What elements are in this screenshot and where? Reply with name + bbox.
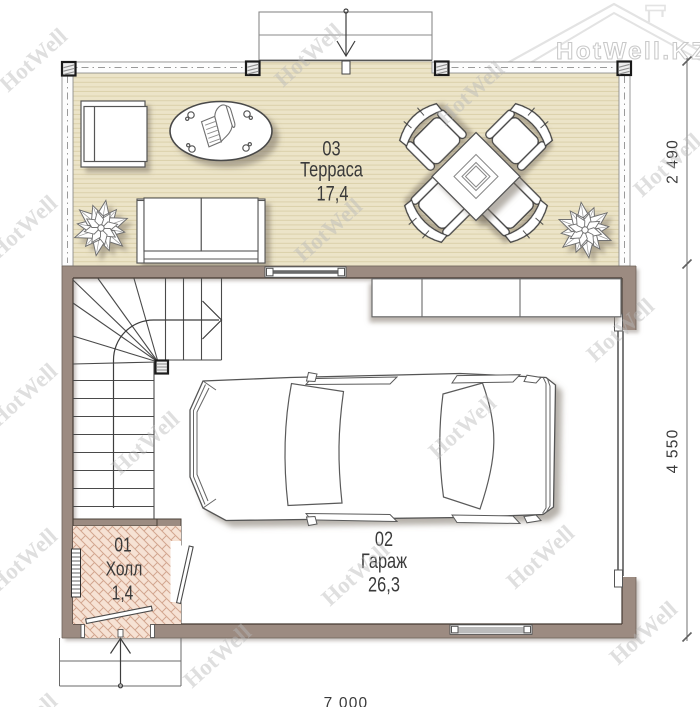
svg-text:26,3: 26,3 — [368, 573, 400, 596]
svg-text:03: 03 — [322, 137, 340, 160]
svg-text:01: 01 — [114, 534, 131, 556]
svg-text:7 000: 7 000 — [324, 695, 369, 707]
svg-text:Холл: Холл — [106, 558, 143, 580]
svg-text:1,4: 1,4 — [112, 582, 134, 604]
svg-text:Терраса: Терраса — [300, 158, 363, 181]
svg-text:4 550: 4 550 — [665, 429, 682, 474]
